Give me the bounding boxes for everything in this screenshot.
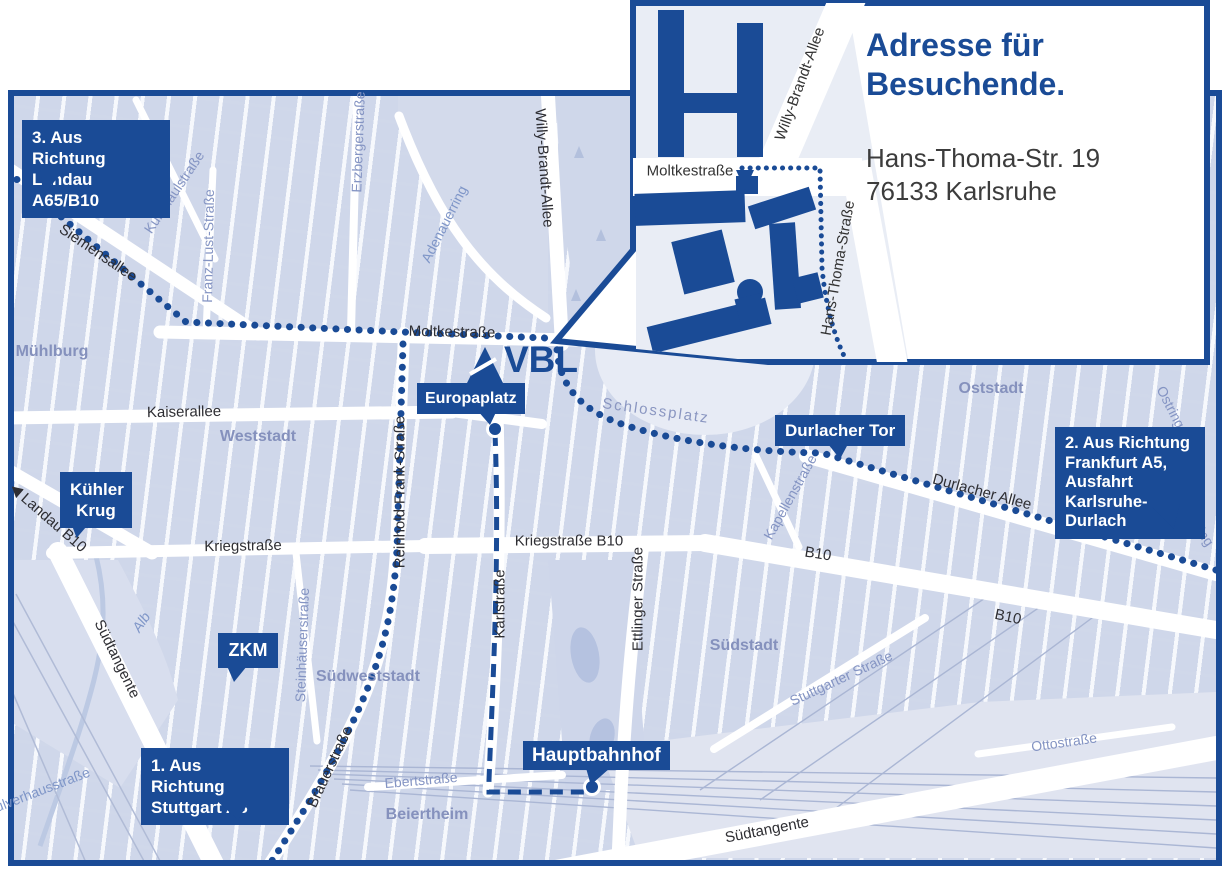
inset-panel	[0, 0, 1230, 874]
karlsruhe-directions-map: VBL Siemensallee Moltkestraße Kaiseralle…	[0, 0, 1230, 874]
inset-title-line1: Adresse für	[866, 26, 1065, 65]
inset-address-line2: 76133 Karlsruhe	[866, 175, 1100, 208]
inset-title: Adresse für Besuchende.	[866, 26, 1065, 104]
inset-title-line2: Besuchende.	[866, 65, 1065, 104]
inset-street-moltkestrasse: Moltkestraße	[647, 163, 734, 180]
inset-address: Hans-Thoma-Str. 19 76133 Karlsruhe	[866, 142, 1100, 208]
inset-address-line1: Hans-Thoma-Str. 19	[866, 142, 1100, 175]
